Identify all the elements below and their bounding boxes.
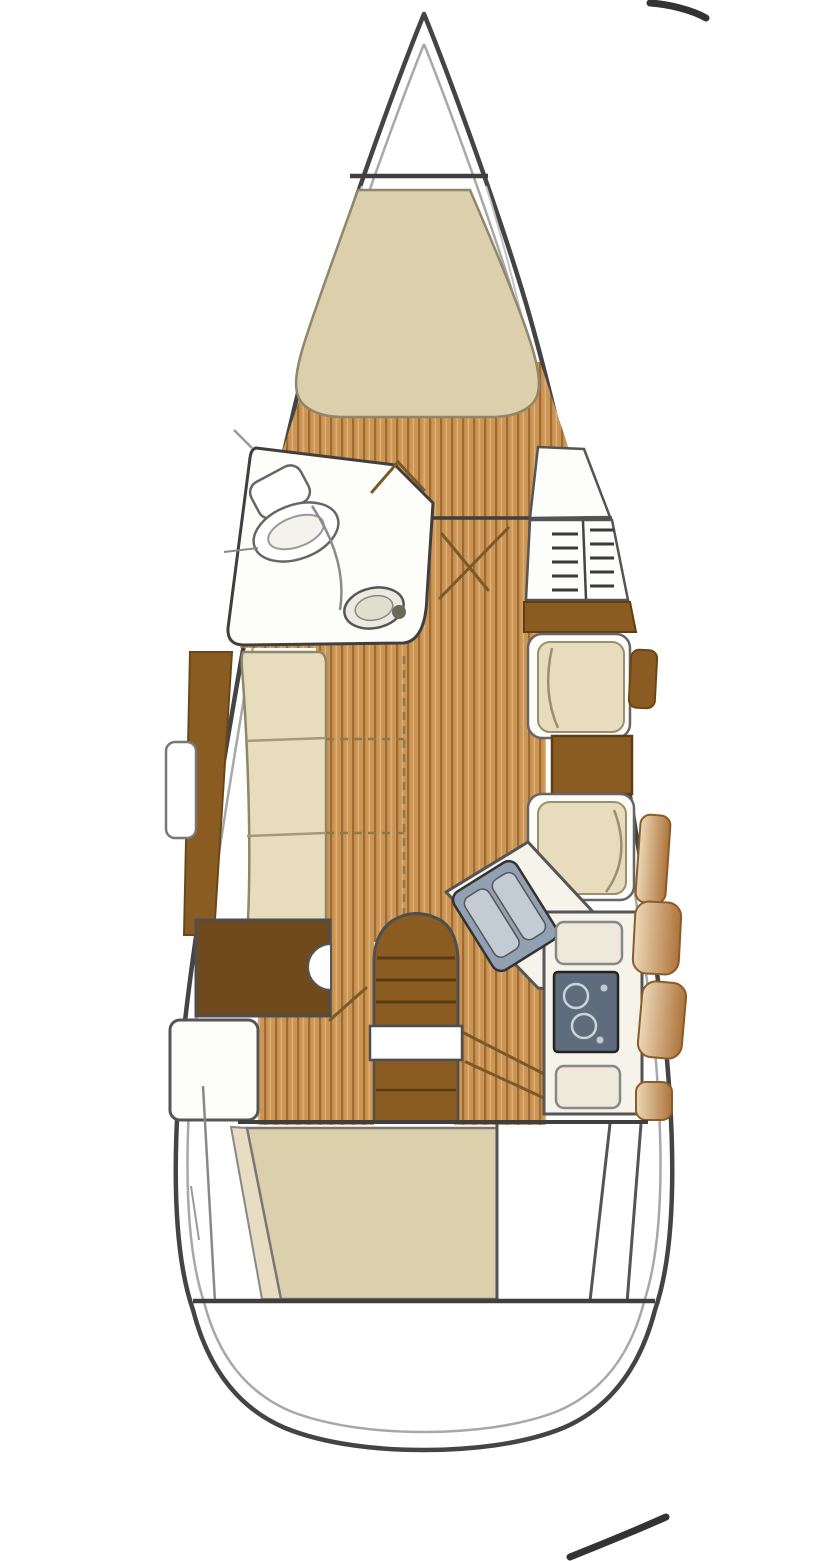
- side-shelf-aft: [635, 814, 671, 904]
- locker-strip: [524, 602, 636, 632]
- worktop-lid-lower: [556, 1066, 620, 1108]
- worktop-lid-upper: [556, 922, 622, 964]
- boat-floor-plan: [0, 0, 828, 1561]
- side-shelf-forward: [629, 649, 658, 708]
- sole-port-corner: [258, 1014, 304, 1125]
- companionway-landing: [370, 1026, 462, 1060]
- dinette-table: [552, 736, 632, 794]
- stove-knob: [601, 985, 608, 992]
- head-hull-joint: [234, 430, 252, 448]
- stove-knob: [597, 1037, 604, 1044]
- companionway-steps: [374, 914, 458, 1027]
- shelf-unit: [526, 520, 628, 600]
- hull-side-locker: [166, 742, 196, 838]
- aft-berth-cushion: [247, 1128, 497, 1299]
- port-locker: [170, 1020, 258, 1120]
- settee-cushion: [242, 652, 326, 937]
- companionway: [370, 914, 462, 1123]
- hanging-locker: [530, 447, 610, 518]
- boat-floor-plan-page: [0, 0, 828, 1561]
- washbasin-faucet: [392, 605, 406, 619]
- stove: [554, 972, 618, 1052]
- quarter-shelf: [636, 1082, 672, 1120]
- shelf-unit-box: [526, 520, 628, 600]
- stray-line-top-right: [650, 3, 706, 18]
- quarter-shelf: [637, 980, 687, 1060]
- stove-top: [554, 972, 618, 1052]
- quarter-shelf: [632, 901, 682, 975]
- stray-line-bottom-right: [570, 1517, 666, 1557]
